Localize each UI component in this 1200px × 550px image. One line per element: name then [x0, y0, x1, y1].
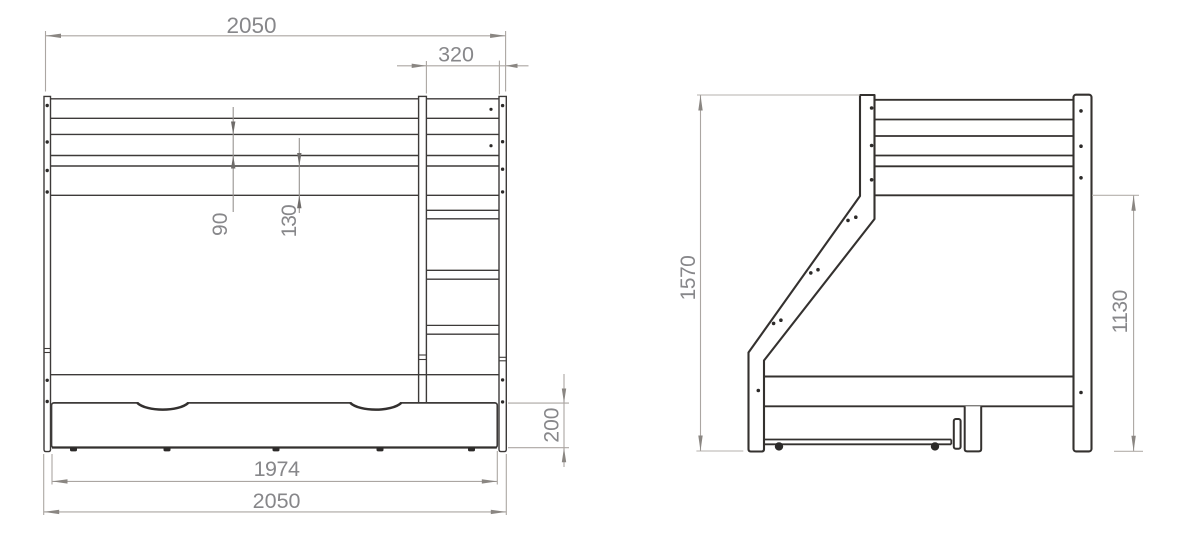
svg-text:1974: 1974	[254, 457, 300, 481]
svg-text:320: 320	[438, 43, 474, 67]
svg-text:2050: 2050	[253, 489, 301, 513]
svg-text:2050: 2050	[226, 13, 276, 38]
svg-text:200: 200	[541, 408, 564, 443]
svg-text:130: 130	[278, 205, 301, 237]
svg-text:90: 90	[209, 213, 232, 236]
svg-text:1130: 1130	[1109, 290, 1132, 333]
svg-text:1570: 1570	[677, 256, 700, 301]
